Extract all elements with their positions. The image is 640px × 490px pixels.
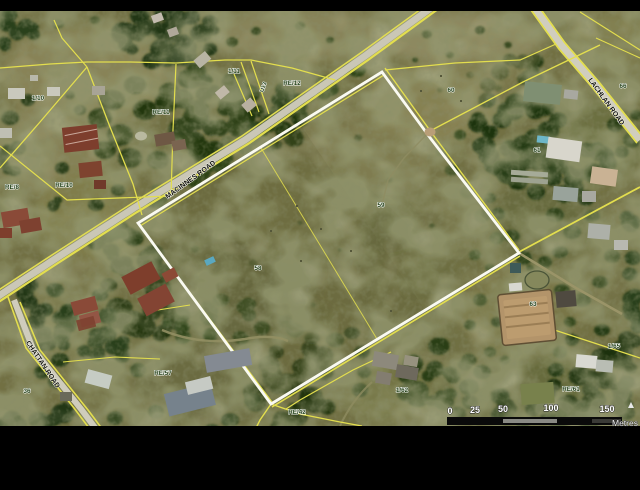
svg-text:RE/8: RE/8 bbox=[5, 184, 19, 191]
svg-text:61: 61 bbox=[533, 147, 541, 154]
svg-text:100: 100 bbox=[543, 403, 558, 413]
svg-text:59: 59 bbox=[377, 202, 385, 209]
svg-text:60: 60 bbox=[447, 87, 455, 94]
svg-text:36: 36 bbox=[23, 388, 31, 395]
svg-text:1/65: 1/65 bbox=[608, 343, 621, 350]
svg-text:1/11: 1/11 bbox=[228, 68, 240, 75]
svg-text:1/10: 1/10 bbox=[32, 95, 45, 102]
svg-text:RE/57: RE/57 bbox=[154, 370, 172, 377]
svg-text:RE/42: RE/42 bbox=[288, 409, 306, 416]
svg-text:25: 25 bbox=[470, 405, 480, 415]
svg-text:0: 0 bbox=[447, 406, 452, 416]
svg-text:66: 66 bbox=[619, 83, 627, 90]
svg-text:50: 50 bbox=[498, 404, 508, 414]
svg-text:58: 58 bbox=[254, 265, 262, 272]
svg-text:Metres: Metres bbox=[612, 418, 638, 428]
svg-text:RE/11: RE/11 bbox=[152, 109, 170, 116]
svg-text:150: 150 bbox=[599, 404, 614, 414]
svg-text:1/62: 1/62 bbox=[396, 387, 409, 394]
svg-text:63: 63 bbox=[529, 301, 537, 308]
svg-text:RE/12: RE/12 bbox=[283, 80, 301, 87]
svg-text:RE/10: RE/10 bbox=[55, 182, 73, 189]
svg-text:RE/61: RE/61 bbox=[562, 386, 580, 393]
